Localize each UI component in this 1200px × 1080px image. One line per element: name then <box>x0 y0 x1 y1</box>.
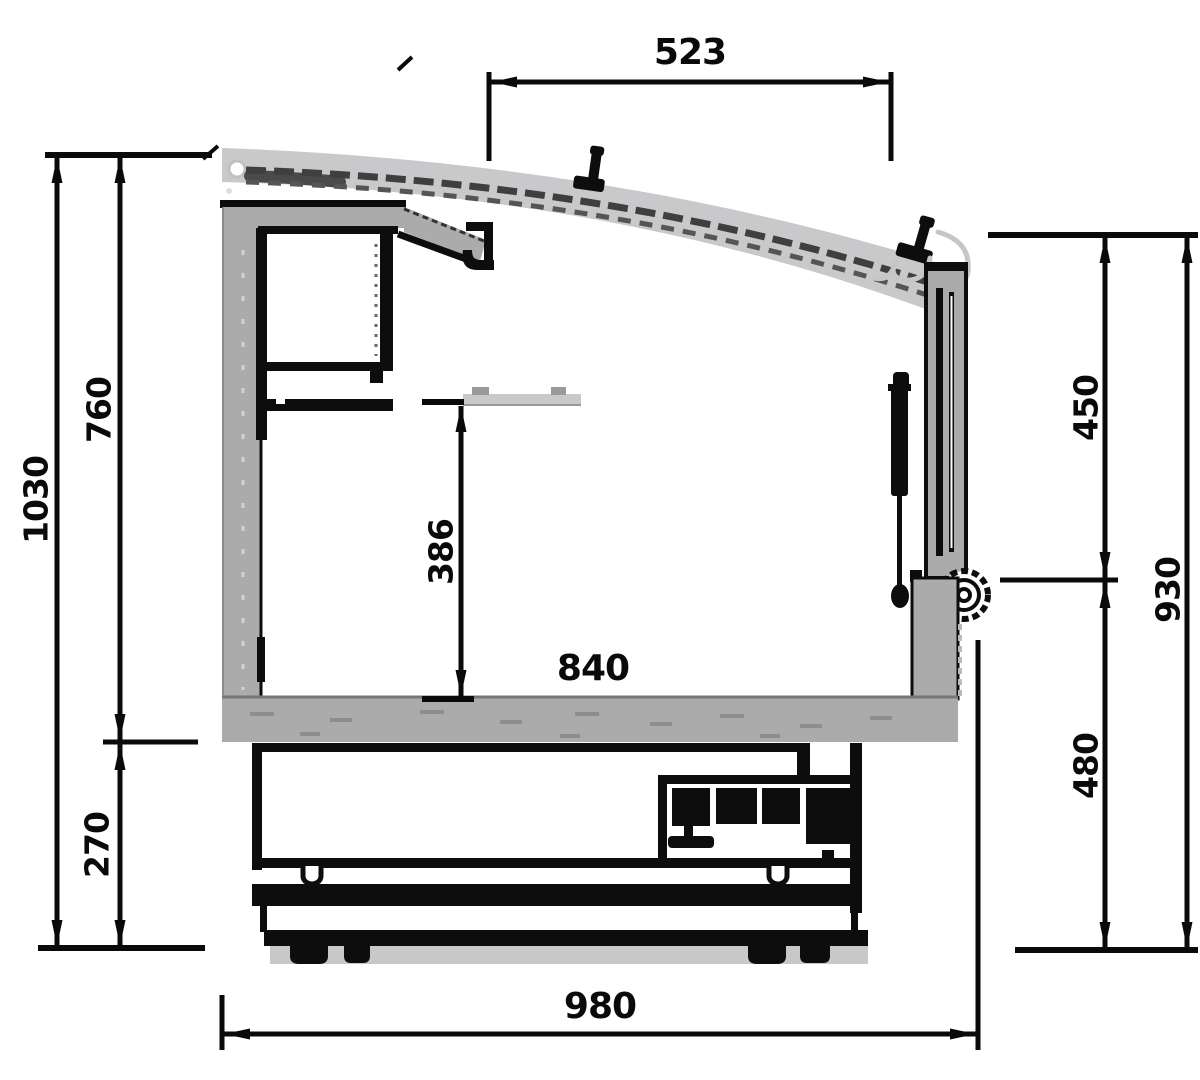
deck-slab <box>222 697 958 742</box>
front-lower-block <box>910 570 960 699</box>
dim-label-980: 980 <box>564 986 636 1027</box>
drawing-canvas: 523 1030 760 270 386 840 450 480 930 <box>0 0 1200 1080</box>
dim-label-450: 450 <box>1067 375 1106 441</box>
lid-clip-right <box>895 211 942 265</box>
dim-label-930: 930 <box>1149 557 1188 623</box>
foot <box>290 944 328 964</box>
section-drawing: 523 1030 760 270 386 840 450 480 930 <box>0 0 1200 1080</box>
dim-label-1030: 1030 <box>17 456 56 544</box>
dim-label-523: 523 <box>654 32 726 73</box>
gas-strut <box>888 372 911 608</box>
lid-clip-left <box>573 144 610 193</box>
base-plinth <box>252 884 868 964</box>
foot <box>344 946 370 963</box>
foot <box>800 946 830 963</box>
dim-left-heights: 1030 760 270 <box>17 146 219 948</box>
dim-label-270: 270 <box>78 812 117 878</box>
rear-wall <box>222 207 267 699</box>
dim-right-heights: 450 480 930 <box>988 235 1198 950</box>
dim-label-480: 480 <box>1067 733 1106 799</box>
glass-edge <box>250 176 340 182</box>
interior-shelf <box>463 387 581 405</box>
front-glass-column <box>924 262 968 578</box>
lid-mount-hole <box>229 161 245 177</box>
compressor-2 <box>716 788 757 824</box>
shelf-rail <box>266 399 393 411</box>
compressor-4 <box>806 788 850 844</box>
dim-label-760: 760 <box>80 377 119 443</box>
drain-hook-right <box>769 866 787 884</box>
dim-label-386: 386 <box>422 519 461 585</box>
foot <box>748 944 786 964</box>
dim-well-depth: 386 <box>422 402 475 699</box>
dim-label-840: 840 <box>557 648 629 689</box>
dim-top-glass-width: 523 <box>398 32 891 161</box>
rear-air-duct <box>258 226 398 411</box>
compressor-3 <box>762 788 800 824</box>
compressor-1 <box>672 788 710 826</box>
drain-hook-left <box>303 866 321 884</box>
